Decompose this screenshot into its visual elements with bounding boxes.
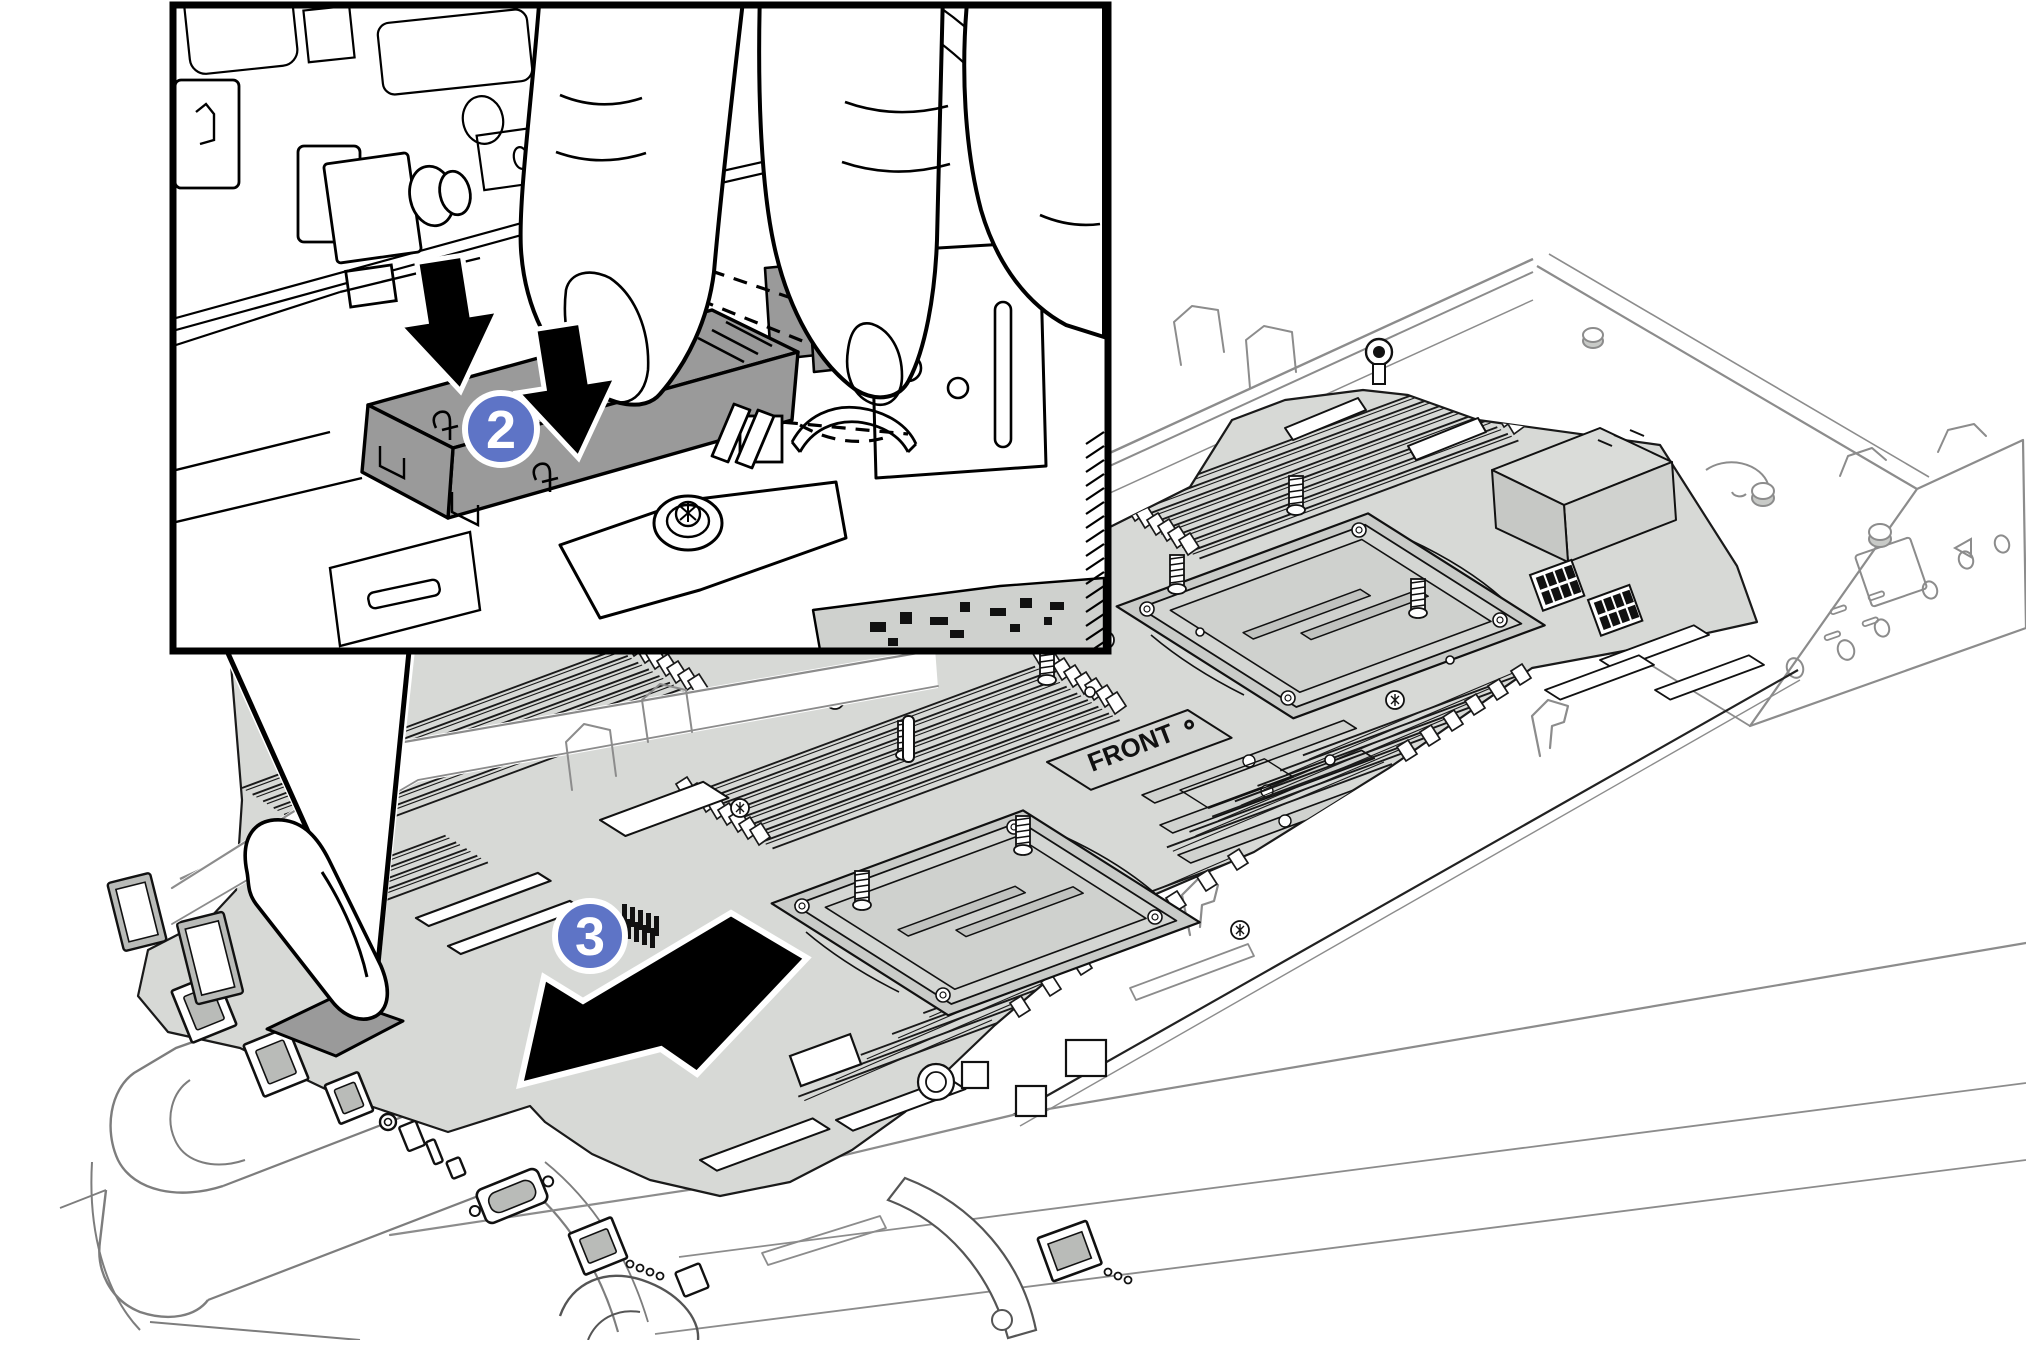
svg-text:3: 3 [575, 907, 605, 967]
svg-text:2: 2 [486, 400, 516, 460]
